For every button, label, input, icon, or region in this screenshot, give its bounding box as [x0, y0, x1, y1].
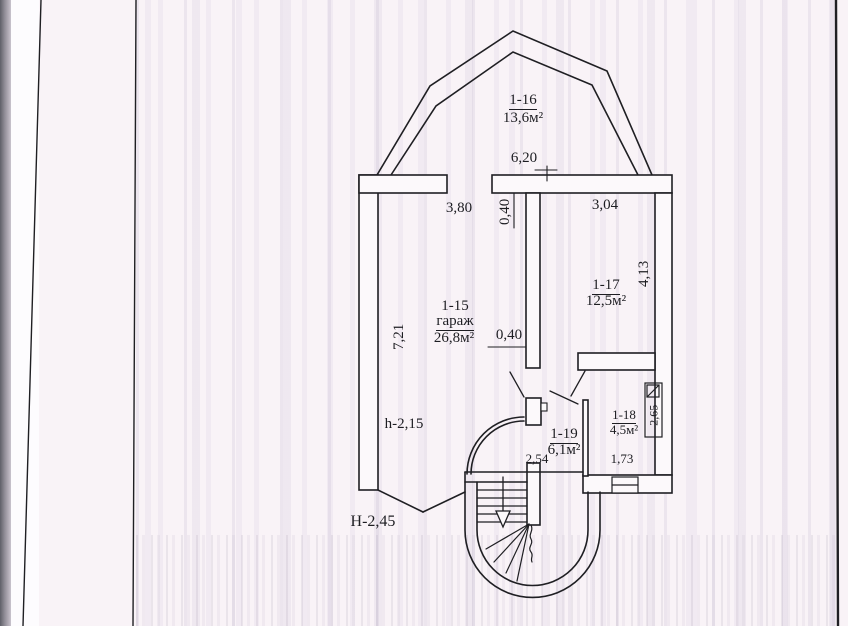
dim-room-1-18-width: 1,73 — [601, 452, 643, 466]
garage-top-wall — [359, 175, 447, 193]
height-mark-low: h-2,15 — [376, 417, 432, 433]
door-pier — [526, 398, 541, 425]
room-1-16-area: 13,6м² — [494, 111, 552, 127]
hinge-mark — [541, 403, 547, 411]
dim-partition-mid: 0,40 — [488, 328, 530, 344]
dim-stair-width: 2,54 — [516, 452, 558, 466]
dim-partition-top: 0,40 — [498, 193, 514, 231]
room-1-17-area: 12,5м² — [576, 294, 636, 310]
page-edge-lines — [23, 0, 838, 626]
dim-room-1-18-depth: 2,65 — [648, 397, 661, 433]
dim-top-width: 6,20 — [502, 151, 546, 167]
garage-left-wall — [359, 175, 378, 490]
room-1-18-label: 1-18 — [602, 408, 646, 422]
door-leaves — [510, 371, 585, 404]
staircase — [477, 490, 532, 581]
threshold-step — [612, 477, 638, 493]
room-1-16-label: 1-16 — [498, 93, 548, 109]
break-line — [530, 525, 532, 562]
dim-garage-top-width: 3,80 — [437, 201, 481, 217]
room-1-15-name: гараж — [428, 314, 482, 330]
scanned-floor-plan-page: 1-16 13,6м² 6,20 3,80 0,40 3,04 4,13 7,2… — [0, 0, 848, 626]
height-mark-main: H-2,45 — [340, 514, 406, 531]
floor-plan-drawing — [0, 0, 848, 626]
garage-door-leaf — [510, 372, 524, 397]
top-wall — [492, 175, 672, 193]
room-1-19-label: 1-19 — [541, 427, 587, 443]
dim-room-1-17-depth: 4,13 — [637, 255, 653, 293]
room-1-18-door-leaf — [550, 391, 578, 404]
room-1-18-area: 4,5м² — [599, 423, 649, 437]
wall-1-17-1-18 — [578, 353, 655, 370]
room-1-17-door-leaf — [571, 371, 585, 396]
stairs-down-arrow-icon — [496, 477, 510, 527]
dim-room-1-17-width: 3,04 — [582, 198, 628, 214]
dim-garage-depth: 7,21 — [392, 317, 408, 357]
splayed-corner — [378, 490, 465, 512]
room-1-17-label: 1-17 — [582, 278, 630, 294]
room-1-15-area: 26,8м² — [424, 331, 484, 347]
